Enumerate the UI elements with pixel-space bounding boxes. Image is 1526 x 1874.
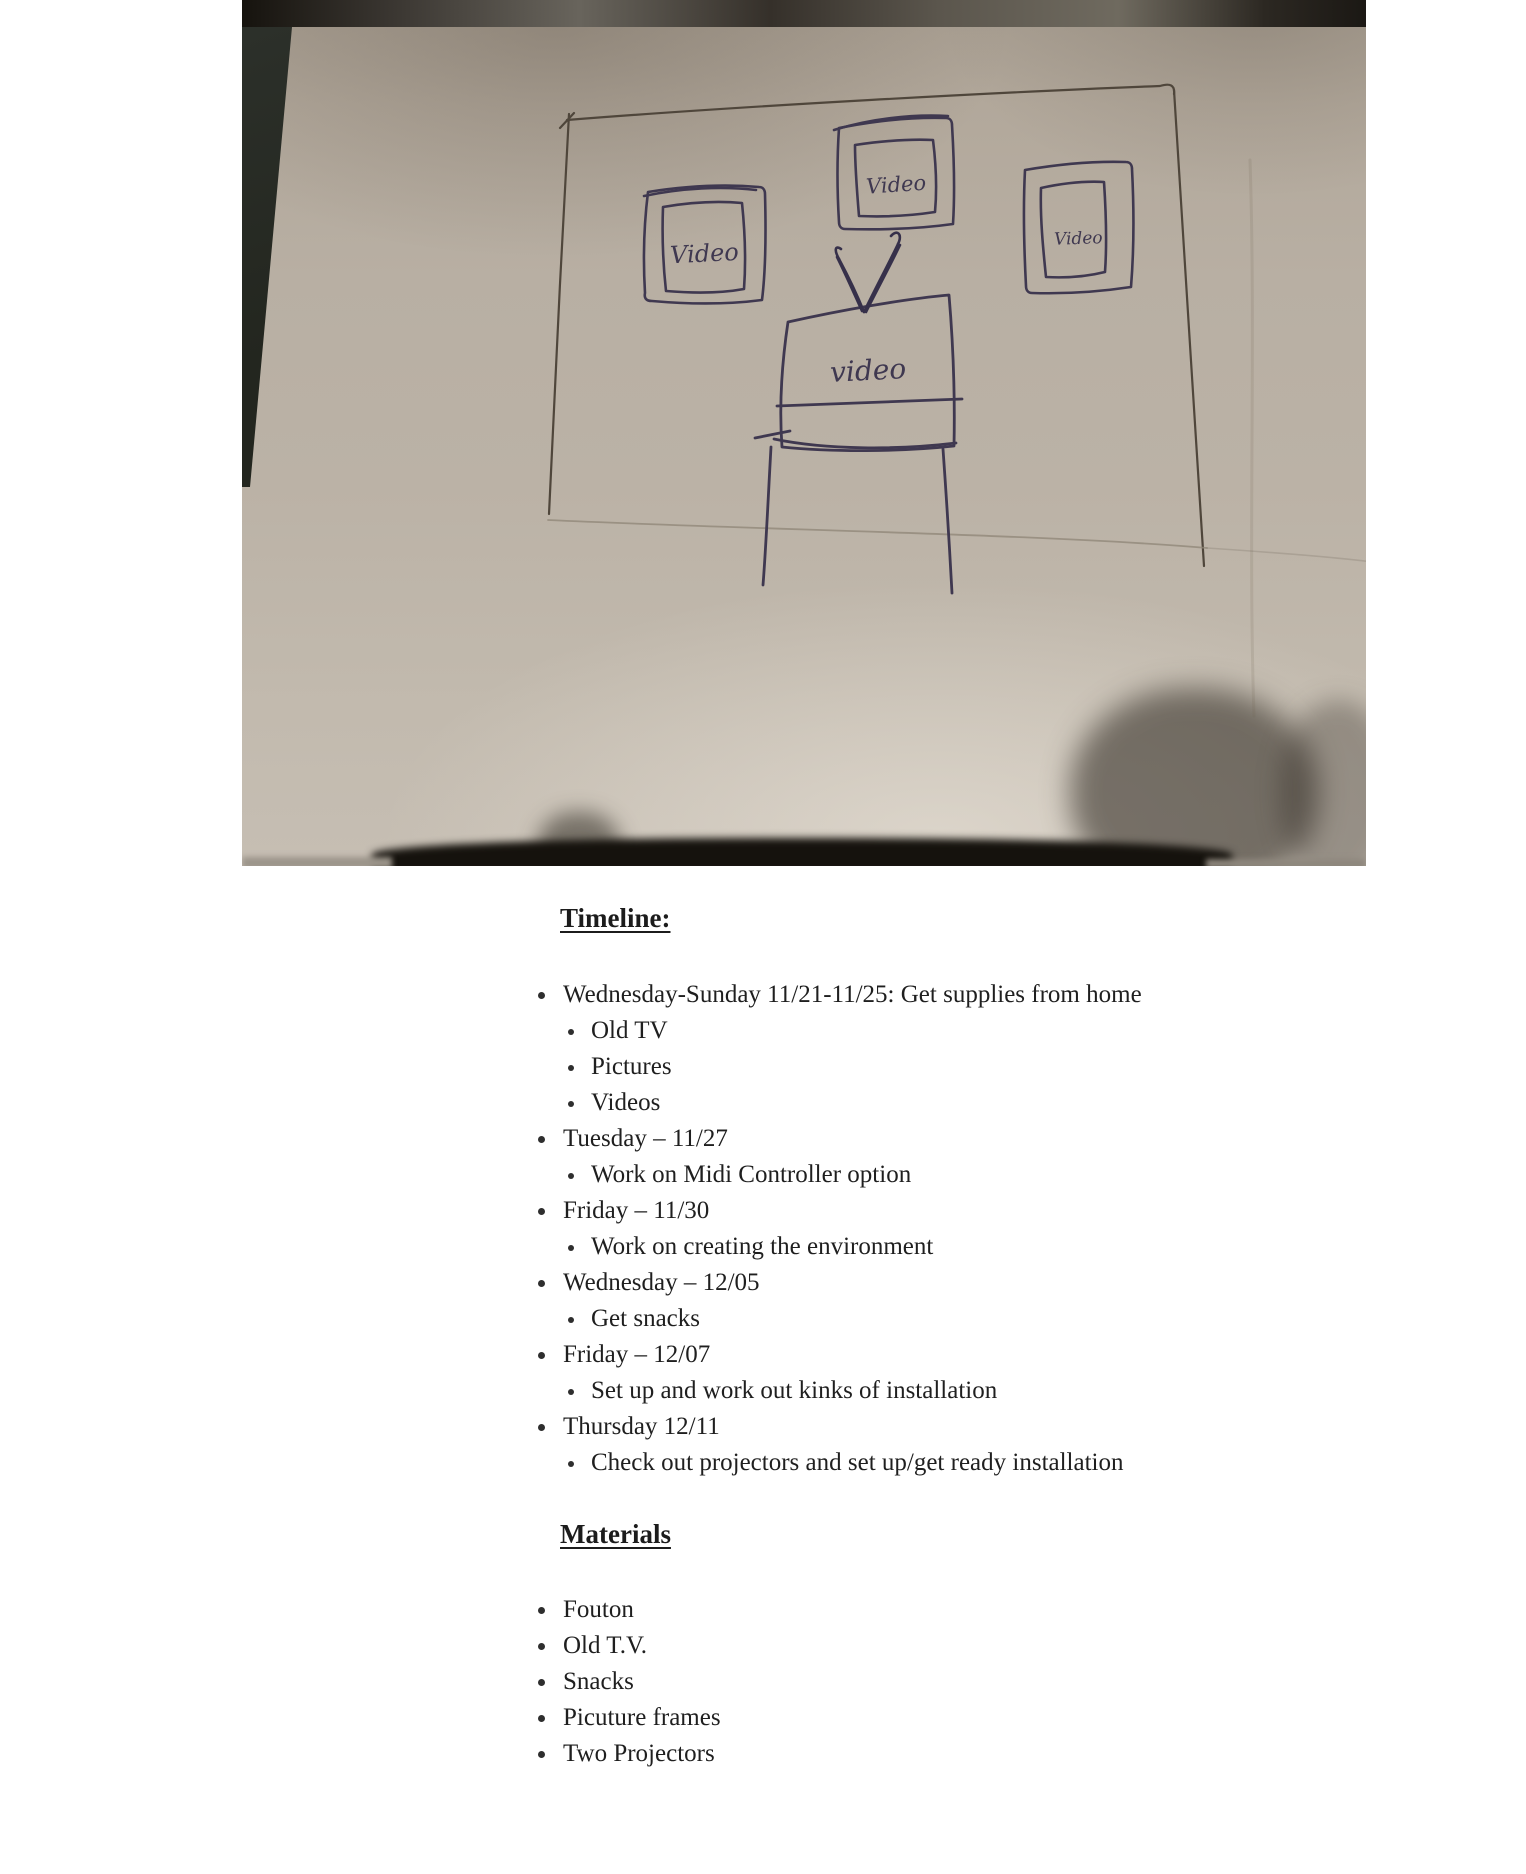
timeline-subentry: Check out projectors and set up/get read… bbox=[591, 1449, 1124, 1476]
materials-heading: Materials bbox=[560, 1519, 671, 1550]
timeline-subentry: Work on creating the environment bbox=[591, 1233, 933, 1260]
material-entry: Fouton bbox=[563, 1596, 634, 1623]
list-item: Set up and work out kinks of installatio… bbox=[566, 1373, 1142, 1409]
tv-video-label: video bbox=[829, 352, 907, 389]
list-item: Fouton bbox=[537, 1592, 721, 1628]
list-item: Friday – 11/30 Work on creating the envi… bbox=[537, 1193, 1142, 1265]
timeline-sublist: Old TV Pictures Videos bbox=[566, 1013, 1142, 1121]
material-entry: Snacks bbox=[563, 1668, 634, 1695]
timeline-entry: Friday – 12/07 bbox=[563, 1341, 710, 1368]
frame-right-video-label: Video bbox=[1054, 228, 1103, 250]
material-entry: Old T.V. bbox=[563, 1632, 647, 1659]
list-item: Snacks bbox=[537, 1664, 721, 1700]
timeline-subentry: Pictures bbox=[591, 1053, 672, 1080]
materials-list: Fouton Old T.V. Snacks Picuture frames T… bbox=[537, 1592, 721, 1772]
timeline-heading: Timeline: bbox=[560, 903, 671, 934]
list-item: Old TV bbox=[566, 1013, 1142, 1049]
timeline-subentry: Work on Midi Controller option bbox=[591, 1161, 911, 1188]
timeline-subentry: Old TV bbox=[591, 1017, 668, 1044]
timeline-subentry: Get snacks bbox=[591, 1305, 700, 1332]
photo-bottom-edge-left bbox=[242, 857, 392, 866]
timeline-subentry: Videos bbox=[591, 1089, 660, 1116]
timeline-entry: Wednesday-Sunday 11/21-11/25: Get suppli… bbox=[563, 981, 1142, 1008]
wall-sketch-drawing: Video Video Video video bbox=[242, 0, 1366, 866]
frame-top-video-label: Video bbox=[865, 171, 927, 199]
timeline-sublist: Set up and work out kinks of installatio… bbox=[566, 1373, 1142, 1409]
list-item: Friday – 12/07 Set up and work out kinks… bbox=[537, 1337, 1142, 1409]
list-item: Work on Midi Controller option bbox=[566, 1157, 1142, 1193]
timeline-subentry: Set up and work out kinks of installatio… bbox=[591, 1377, 997, 1404]
timeline-entry: Friday – 11/30 bbox=[563, 1197, 709, 1224]
timeline-sublist: Work on Midi Controller option bbox=[566, 1157, 1142, 1193]
list-item: Wednesday-Sunday 11/21-11/25: Get suppli… bbox=[537, 977, 1142, 1121]
timeline-list: Wednesday-Sunday 11/21-11/25: Get suppli… bbox=[537, 977, 1142, 1481]
list-item: Check out projectors and set up/get read… bbox=[566, 1445, 1142, 1481]
list-item: Thursday 12/11 Check out projectors and … bbox=[537, 1409, 1142, 1481]
timeline-sublist: Get snacks bbox=[566, 1301, 1142, 1337]
list-item: Wednesday – 12/05 Get snacks bbox=[537, 1265, 1142, 1337]
photo-background-top bbox=[242, 0, 1366, 27]
list-item: Picuture frames bbox=[537, 1700, 721, 1736]
timeline-sublist: Work on creating the environment bbox=[566, 1229, 1142, 1265]
timeline-entry: Tuesday – 11/27 bbox=[563, 1125, 728, 1152]
list-item: Pictures bbox=[566, 1049, 1142, 1085]
list-item: Tuesday – 11/27 Work on Midi Controller … bbox=[537, 1121, 1142, 1193]
photo-bottom-edge-right bbox=[1206, 859, 1366, 866]
timeline-entry: Thursday 12/11 bbox=[563, 1413, 720, 1440]
list-item: Videos bbox=[566, 1085, 1142, 1121]
list-item: Work on creating the environment bbox=[566, 1229, 1142, 1265]
material-entry: Picuture frames bbox=[563, 1704, 721, 1731]
list-item: Old T.V. bbox=[537, 1628, 721, 1664]
sketch-photo: Video Video Video video bbox=[242, 0, 1366, 866]
photo-table-edge bbox=[372, 838, 1232, 866]
list-item: Get snacks bbox=[566, 1301, 1142, 1337]
material-entry: Two Projectors bbox=[563, 1740, 715, 1767]
timeline-entry: Wednesday – 12/05 bbox=[563, 1269, 760, 1296]
list-item: Two Projectors bbox=[537, 1736, 721, 1772]
frame-left-video-label: Video bbox=[669, 238, 739, 270]
timeline-sublist: Check out projectors and set up/get read… bbox=[566, 1445, 1142, 1481]
